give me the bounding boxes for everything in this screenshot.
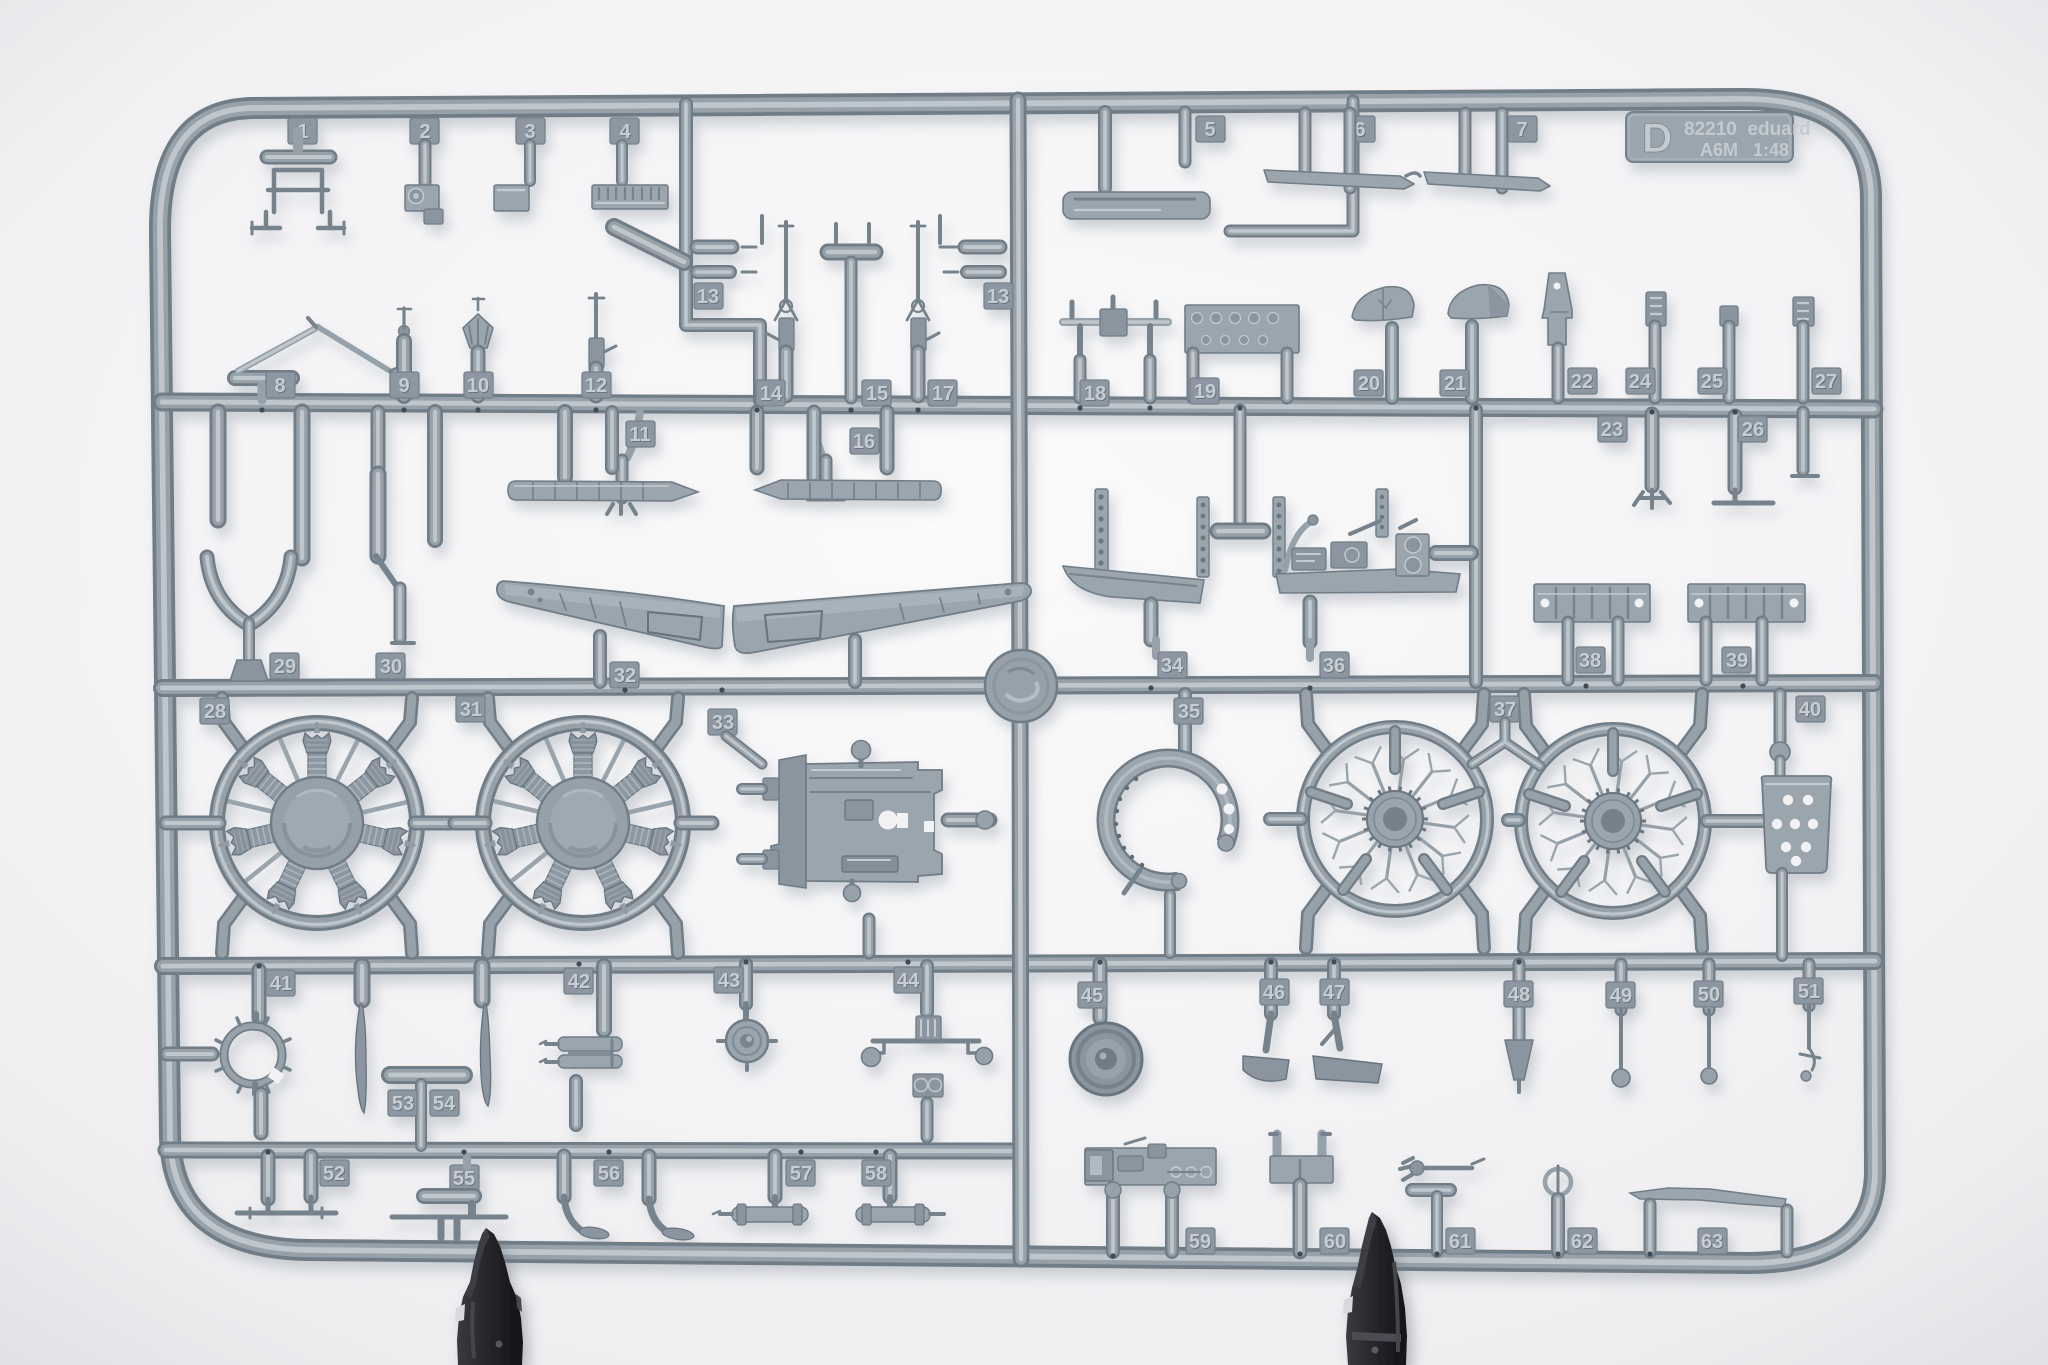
svg-text:61: 61 xyxy=(1449,1231,1471,1253)
svg-text:60: 60 xyxy=(1324,1231,1346,1253)
svg-text:20: 20 xyxy=(1358,373,1380,395)
svg-text:44: 44 xyxy=(897,970,920,992)
svg-text:52: 52 xyxy=(323,1163,345,1185)
svg-text:7: 7 xyxy=(1516,119,1527,141)
svg-text:12: 12 xyxy=(585,375,607,397)
svg-text:8: 8 xyxy=(274,375,285,397)
svg-text:9: 9 xyxy=(398,375,409,397)
svg-text:D: D xyxy=(1642,114,1672,161)
svg-text:54: 54 xyxy=(433,1093,456,1115)
svg-text:14: 14 xyxy=(760,383,783,405)
svg-text:56: 56 xyxy=(598,1163,620,1185)
svg-text:10: 10 xyxy=(467,375,489,397)
svg-text:41: 41 xyxy=(270,973,292,995)
svg-text:15: 15 xyxy=(866,383,888,405)
svg-text:21: 21 xyxy=(1444,373,1466,395)
svg-text:16: 16 xyxy=(853,431,875,453)
svg-text:51: 51 xyxy=(1798,981,1820,1003)
svg-text:28: 28 xyxy=(204,701,226,723)
svg-text:27: 27 xyxy=(1815,371,1837,393)
svg-text:22: 22 xyxy=(1571,371,1593,393)
svg-text:33: 33 xyxy=(712,712,734,734)
svg-text:42: 42 xyxy=(568,971,590,993)
svg-text:38: 38 xyxy=(1579,650,1601,672)
svg-text:13: 13 xyxy=(697,286,719,308)
svg-text:45: 45 xyxy=(1081,985,1103,1007)
svg-text:57: 57 xyxy=(790,1163,812,1185)
svg-text:63: 63 xyxy=(1701,1231,1723,1253)
svg-text:13: 13 xyxy=(987,286,1009,308)
svg-text:50: 50 xyxy=(1698,984,1720,1006)
svg-text:11: 11 xyxy=(629,424,650,446)
svg-text:43: 43 xyxy=(718,970,740,992)
svg-text:A6M 1:48: A6M 1:48 xyxy=(1700,140,1789,160)
svg-text:19: 19 xyxy=(1194,381,1216,403)
svg-text:40: 40 xyxy=(1799,699,1821,721)
svg-text:29: 29 xyxy=(274,656,296,678)
svg-text:25: 25 xyxy=(1701,371,1723,393)
svg-text:39: 39 xyxy=(1726,650,1748,672)
svg-text:24: 24 xyxy=(1629,371,1652,393)
svg-text:49: 49 xyxy=(1610,985,1632,1007)
svg-text:48: 48 xyxy=(1508,984,1530,1006)
svg-text:46: 46 xyxy=(1263,982,1285,1004)
svg-text:53: 53 xyxy=(392,1093,414,1115)
svg-text:26: 26 xyxy=(1742,419,1764,441)
svg-text:82210 eduard: 82210 eduard xyxy=(1684,119,1811,140)
svg-text:59: 59 xyxy=(1189,1231,1211,1253)
svg-text:30: 30 xyxy=(380,656,402,678)
svg-text:62: 62 xyxy=(1571,1231,1593,1253)
svg-text:17: 17 xyxy=(932,383,954,405)
svg-text:31: 31 xyxy=(460,699,482,721)
svg-text:36: 36 xyxy=(1323,655,1345,677)
svg-text:55: 55 xyxy=(453,1168,475,1190)
svg-text:58: 58 xyxy=(865,1163,887,1185)
svg-text:5: 5 xyxy=(1204,119,1215,141)
svg-text:47: 47 xyxy=(1323,982,1345,1004)
svg-text:34: 34 xyxy=(1161,655,1184,677)
svg-text:35: 35 xyxy=(1178,701,1200,723)
svg-text:18: 18 xyxy=(1084,383,1106,405)
svg-text:32: 32 xyxy=(614,665,636,687)
svg-text:23: 23 xyxy=(1601,419,1623,441)
